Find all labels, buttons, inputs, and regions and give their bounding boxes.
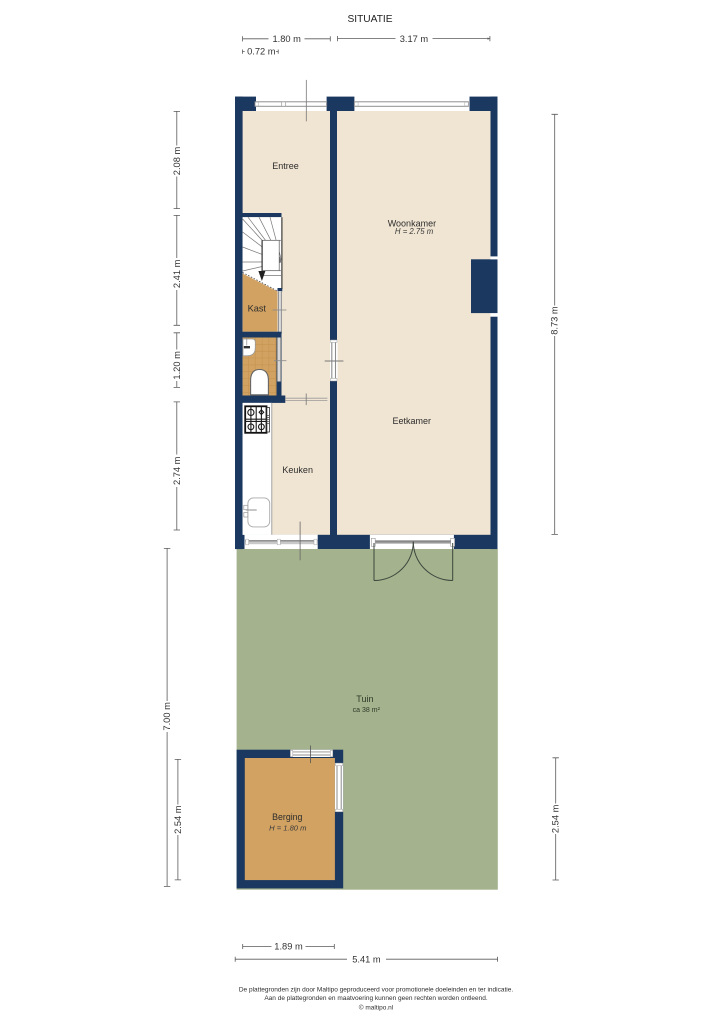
svg-text:Eetkamer: Eetkamer [392, 416, 431, 426]
svg-text:3.17 m: 3.17 m [400, 34, 429, 44]
svg-text:1.80 m: 1.80 m [272, 34, 301, 44]
svg-text:0.72 m: 0.72 m [247, 47, 276, 57]
svg-text:1.20 m: 1.20 m [172, 351, 182, 380]
svg-text:2.54 m: 2.54 m [551, 804, 561, 833]
svg-text:Berging: Berging [272, 812, 302, 822]
svg-text:2.41 m: 2.41 m [172, 259, 182, 288]
svg-text:2.08 m: 2.08 m [172, 147, 182, 176]
svg-text:Entree: Entree [272, 161, 299, 171]
svg-text:1.89 m: 1.89 m [274, 942, 303, 952]
svg-text:Tuin: Tuin [356, 694, 373, 704]
svg-text:Kast: Kast [248, 304, 267, 314]
svg-text:SITUATIE: SITUATIE [347, 14, 392, 25]
svg-text:7.00 m: 7.00 m [162, 702, 172, 731]
svg-text:2.74 m: 2.74 m [172, 456, 182, 485]
svg-text:2.54 m: 2.54 m [173, 805, 183, 834]
svg-text:H = 1.80 m: H = 1.80 m [269, 823, 306, 832]
svg-text:ca 38 m²: ca 38 m² [353, 707, 381, 714]
svg-text:De plattegronden zijn door Mal: De plattegronden zijn door Maltipo gepro… [239, 987, 513, 994]
svg-text:Keuken: Keuken [282, 465, 313, 475]
svg-text:© maltipo.nl: © maltipo.nl [359, 1003, 394, 1011]
svg-text:Aan de plattegronden en maatvo: Aan de plattegronden en maatvoering kunn… [264, 995, 488, 1002]
svg-text:H = 2.75 m: H = 2.75 m [395, 227, 434, 236]
svg-text:5.41 m: 5.41 m [352, 954, 381, 964]
svg-text:8.73 m: 8.73 m [550, 306, 560, 335]
